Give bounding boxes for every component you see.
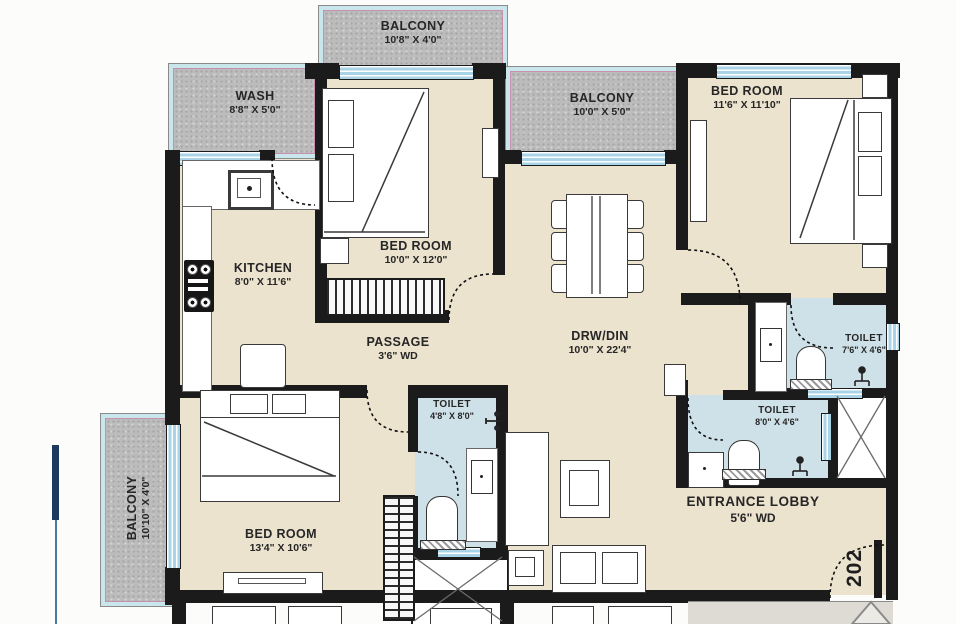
- label-bedroom-top-right: BED ROOM 11'6" X 11'10": [711, 83, 783, 113]
- room-dim: 3'6" WD: [367, 350, 430, 364]
- tv-table-inner: [569, 470, 599, 506]
- label-wash: WASH 8'8" X 5'0": [229, 88, 280, 118]
- wall: [500, 600, 514, 624]
- shoe-cabinet: [664, 364, 686, 396]
- window: [521, 151, 666, 166]
- wardrobe: [383, 495, 415, 621]
- window: [716, 64, 852, 79]
- bath-mat: [722, 469, 766, 480]
- room-name: TOILET: [755, 404, 799, 417]
- pillow: [328, 100, 354, 148]
- room-dim: 10'0" X 5'0": [570, 106, 635, 120]
- room-dim: 8'0" X 11'6": [234, 276, 292, 290]
- room-dim: 5'6" WD: [686, 511, 819, 527]
- washbasin: [471, 460, 493, 494]
- sofa-seat: [602, 552, 638, 584]
- room-name: ENTRANCE LOBBY: [686, 493, 819, 511]
- room-name: TOILET: [842, 332, 886, 345]
- pillow: [858, 112, 882, 152]
- room-name: TOILET: [430, 398, 474, 411]
- window: [821, 413, 832, 461]
- label-bedroom-bottom: BED ROOM 13'4" X 10'6": [245, 526, 317, 556]
- stool: [508, 550, 544, 586]
- wall: [676, 380, 688, 488]
- basin-dot: [480, 475, 483, 478]
- sofa-2seat: [552, 545, 646, 593]
- wall: [408, 385, 418, 452]
- wall: [833, 293, 898, 305]
- lower-unit-furniture: [552, 606, 594, 624]
- wardrobe-shelf: [690, 120, 707, 222]
- floor-plan: BALCONY 10'8" X 4'0" WASH 8'8" X 5'0" BA…: [0, 0, 956, 624]
- room-name: DRW/DIN: [569, 328, 632, 344]
- lower-unit-furniture: [212, 606, 276, 624]
- label-balcony-left: BALCONY 10'10" X 4'0": [124, 476, 154, 541]
- sink-tap-icon: [247, 186, 252, 191]
- label-kitchen: KITCHEN 8'0" X 11'6": [234, 260, 292, 290]
- burner-icon: [187, 264, 198, 275]
- label-balcony-top: BALCONY 10'8" X 4'0": [381, 18, 446, 48]
- label-entrance-lobby: ENTRANCE LOBBY 5'6" WD: [686, 493, 819, 526]
- fridge: [240, 344, 286, 388]
- bath-mat: [790, 379, 832, 390]
- washbasin: [688, 452, 724, 488]
- stove-panel: [188, 279, 208, 283]
- label-toilet-lower-right: TOILET 8'0" X 4'6": [755, 404, 799, 429]
- room-name: BED ROOM: [711, 83, 783, 99]
- nightstand: [862, 244, 888, 268]
- nightstand: [320, 238, 349, 264]
- stove: [184, 260, 214, 312]
- room-name: PASSAGE: [367, 334, 430, 350]
- wall: [165, 150, 180, 425]
- burner-icon: [200, 297, 211, 308]
- wall: [505, 150, 521, 164]
- entrance-steps: [688, 601, 893, 624]
- wardrobe: [325, 278, 445, 316]
- room-dim: 10'0" X 22'4": [569, 344, 632, 358]
- dresser: [223, 572, 323, 594]
- burner-icon: [187, 297, 198, 308]
- lower-unit-furniture: [608, 606, 672, 624]
- headboard: [200, 390, 340, 418]
- burner-icon: [200, 264, 211, 275]
- pillow: [230, 394, 268, 414]
- wall: [410, 385, 506, 398]
- lower-unit-furniture: [288, 606, 342, 624]
- window: [886, 323, 900, 351]
- label-toilet-bottom: TOILET 4'8" X 8'0": [430, 398, 474, 423]
- room-dim: 13'4" X 10'6": [245, 542, 317, 556]
- room-dim: 10'8" X 4'0": [381, 34, 446, 48]
- window: [339, 65, 474, 80]
- basin-dot: [703, 467, 706, 470]
- room-dim: 11'6" X 11'10": [711, 99, 783, 113]
- nightstand: [862, 74, 888, 98]
- label-balcony-mid: BALCONY 10'0" X 5'0": [570, 90, 635, 120]
- room-dim: 7'6" X 4'6": [842, 345, 886, 357]
- bath-mat: [420, 540, 466, 550]
- room-dim: 4'8" X 8'0": [430, 411, 474, 423]
- washbasin: [760, 328, 782, 362]
- pillow: [272, 394, 306, 414]
- site-marker-bar: [52, 445, 59, 520]
- site-marker-line: [55, 520, 57, 624]
- stove-panel: [188, 287, 208, 291]
- room-name: BALCONY: [570, 90, 635, 106]
- room-name: BED ROOM: [245, 526, 317, 542]
- wc: [426, 496, 458, 544]
- room-name: BED ROOM: [380, 238, 452, 254]
- room-dim: 8'0" X 4'6": [755, 417, 799, 429]
- entrance-door-leaf: [874, 540, 882, 598]
- label-toilet-upper-right: TOILET 7'6" X 4'6": [842, 332, 886, 357]
- wall-shelf: [482, 128, 499, 178]
- dresser-handle: [238, 578, 306, 584]
- lower-unit-furniture: [430, 608, 492, 624]
- stool-inner: [515, 557, 535, 577]
- kitchen-sink: [228, 170, 274, 210]
- room-name: BALCONY: [124, 476, 140, 541]
- tv-table: [560, 460, 610, 518]
- sofa-3seat: [505, 432, 549, 546]
- room-dim: 10'0" X 12'0": [380, 254, 452, 268]
- wall: [664, 150, 684, 164]
- sofa-seat: [560, 552, 596, 584]
- label-bedroom-top-mid: BED ROOM 10'0" X 12'0": [380, 238, 452, 268]
- window: [166, 424, 181, 569]
- wall: [172, 603, 186, 624]
- room-dim: 8'8" X 5'0": [229, 104, 280, 118]
- dining-table: [566, 194, 628, 298]
- room-name: WASH: [229, 88, 280, 104]
- pillow: [858, 156, 882, 196]
- label-drw-din: DRW/DIN 10'0" X 22'4": [569, 328, 632, 358]
- room-name: KITCHEN: [234, 260, 292, 276]
- pillow: [328, 154, 354, 202]
- room-name: BALCONY: [381, 18, 446, 34]
- unit-number: 202: [843, 549, 867, 587]
- label-passage: PASSAGE 3'6" WD: [367, 334, 430, 364]
- basin-dot: [769, 343, 772, 346]
- room-dim: 10'10" X 4'0": [140, 476, 154, 541]
- duct-shaft-right: [834, 393, 892, 485]
